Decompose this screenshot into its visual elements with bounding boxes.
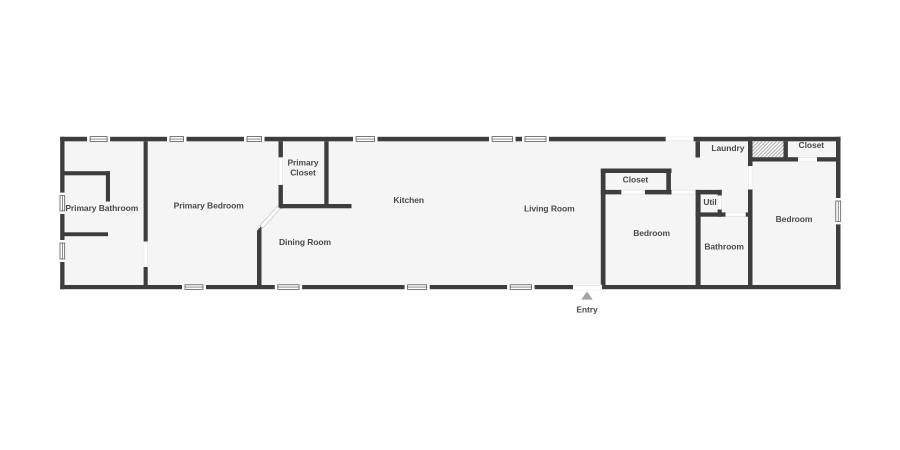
svg-text:Closet: Closet: [799, 140, 825, 150]
svg-text:Kitchen: Kitchen: [393, 195, 424, 205]
svg-text:Util: Util: [703, 197, 716, 207]
svg-text:Dining Room: Dining Room: [279, 237, 332, 247]
svg-text:Primary Bedroom: Primary Bedroom: [174, 201, 245, 211]
svg-text:Closet: Closet: [623, 175, 649, 185]
svg-text:Living Room: Living Room: [524, 203, 575, 213]
svg-text:Laundry: Laundry: [711, 143, 744, 153]
svg-text:Closet: Closet: [290, 168, 316, 178]
svg-text:Primary Bathroom: Primary Bathroom: [65, 203, 138, 213]
svg-text:Entry: Entry: [576, 305, 598, 315]
svg-text:Bathroom: Bathroom: [704, 242, 744, 252]
svg-text:Bedroom: Bedroom: [633, 228, 670, 238]
svg-text:Primary: Primary: [287, 158, 318, 168]
svg-text:Bedroom: Bedroom: [776, 214, 813, 224]
